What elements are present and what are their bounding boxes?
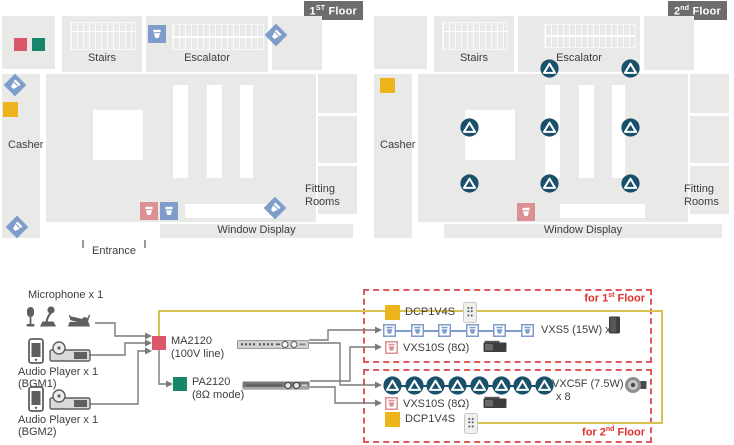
- vxc5f-ceiling-speaker-icon: [540, 118, 559, 142]
- floor2-room-topleft: [374, 16, 427, 69]
- dcp1v4s-location-icon: [380, 78, 395, 93]
- pa2120-location-icon: [32, 38, 45, 51]
- floor2-room-topright: [644, 16, 694, 70]
- ma2120-location-icon: [14, 38, 27, 51]
- floor1-window-display-label: Window Display: [160, 224, 353, 237]
- vxc5f-chain-icon: [513, 376, 532, 400]
- floor2-stairs-label: Stairs: [434, 52, 514, 65]
- vxs10s-product-image: [483, 396, 507, 414]
- microphones-icon: [24, 305, 96, 340]
- vxs5-speaker-icon: [160, 202, 178, 220]
- store-audio-system-diagram: 1ST Floor Stairs Escalator Casher Fittin…: [0, 0, 734, 445]
- ma2120-mode-label: (100V line): [171, 348, 224, 361]
- pa2120-amp-image: [242, 377, 310, 395]
- floor2-fitting-rooms-label: FittingRooms: [684, 183, 719, 209]
- floor1-casher-label: Casher: [8, 139, 43, 152]
- vxc5f-count-label: x 8: [556, 391, 571, 404]
- dcp1v4s-location-icon: [3, 102, 18, 117]
- vxs10s-label: VXS10S (8Ω): [403, 342, 469, 355]
- vxs5-speaker-icon: [148, 25, 166, 43]
- pa2120-mode-label: (8Ω mode): [192, 389, 244, 402]
- bgm2-label: (BGM2): [18, 426, 57, 439]
- dcp1v4s-node: [385, 305, 400, 320]
- zone-2nd-floor-title: for 2nd Floor: [540, 426, 645, 439]
- dcp1v4s-label: DCP1V4S: [405, 413, 455, 426]
- vxs5-chain-icon: [521, 324, 534, 342]
- floor1-room-topright: [272, 16, 322, 70]
- vxs5-chain-icon: [411, 324, 424, 342]
- floor1-escalator-hatch: [172, 24, 264, 50]
- vxs10s-subwoofer-icon: [517, 203, 535, 221]
- vxc5f-ceiling-speaker-icon: [540, 174, 559, 198]
- vxc5f-ceiling-speaker-icon: [540, 59, 559, 83]
- microphone-label: Microphone x 1: [28, 289, 103, 302]
- floor2-casher-area: [374, 74, 412, 238]
- vxs5-product-image: [608, 316, 621, 339]
- vxc5f-product-image: [624, 376, 648, 399]
- ma2120-label: MA2120: [171, 335, 212, 348]
- vxc5f-ceiling-speaker-icon: [621, 174, 640, 198]
- floor1-casher-area: [2, 74, 40, 238]
- floor2-escalator-hatch: [544, 24, 636, 48]
- dcp1v4s-label: DCP1V4S: [405, 306, 455, 319]
- floor1-escalator-label: Escalator: [146, 52, 268, 65]
- dcp1v4s-node: [385, 412, 400, 427]
- vxs10s-label: VXS10S (8Ω): [403, 398, 469, 411]
- floor1-stairs-label: Stairs: [62, 52, 142, 65]
- floor2-stairs-hatch: [442, 22, 508, 50]
- vxc5f-ceiling-speaker-icon: [621, 59, 640, 83]
- vxc5f-chain-icon: [405, 376, 424, 400]
- vxc5f-ceiling-speaker-icon: [621, 118, 640, 142]
- vxs5-chain-icon: [438, 324, 451, 342]
- vxs10s-product-image: [483, 340, 507, 358]
- floor1-room-topleft: [2, 16, 55, 69]
- audio-player1-icon: [28, 338, 92, 370]
- vxs10s-subwoofer-icon: [140, 202, 158, 220]
- audio-player2-icon: [28, 386, 92, 418]
- vxc5f-ceiling-speaker-icon: [460, 118, 479, 142]
- ma2120-amp-image: [237, 336, 309, 354]
- floor2-casher-label: Casher: [380, 139, 415, 152]
- vxs10s-chain-icon: [385, 341, 398, 359]
- vxc5f-chain-icon: [448, 376, 467, 400]
- vxs5-chain-icon: [466, 324, 479, 342]
- pa2120-node: [173, 377, 187, 391]
- vxs5-chain-icon: [383, 324, 396, 342]
- floor2-window-display-label: Window Display: [444, 224, 722, 237]
- floor1-fitting-rooms-label: FittingRooms: [305, 183, 340, 209]
- pa2120-label: PA2120: [192, 376, 230, 389]
- vxc5f-ceiling-speaker-icon: [460, 174, 479, 198]
- floor1-stairs-hatch: [70, 22, 136, 50]
- vxc5f-chain-label: VXC5F (7.5W): [552, 378, 624, 391]
- floor1-entrance-label: Entrance: [84, 245, 144, 258]
- dcp1v4s-panel-image: [464, 413, 478, 439]
- vxc5f-chain-icon: [426, 376, 445, 400]
- ma2120-node: [152, 336, 166, 350]
- zone-1st-floor-title: for 1st Floor: [540, 292, 645, 305]
